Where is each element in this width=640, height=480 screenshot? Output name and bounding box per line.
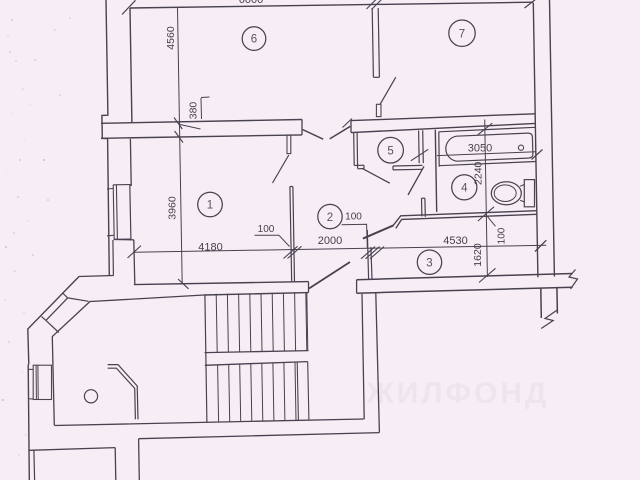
svg-text:7: 7 <box>459 28 465 40</box>
svg-text:100: 100 <box>345 212 362 223</box>
svg-text:380: 380 <box>188 102 200 120</box>
svg-text:2: 2 <box>327 212 333 224</box>
svg-text:3: 3 <box>426 258 432 270</box>
svg-text:4530: 4530 <box>443 235 467 247</box>
svg-text:1: 1 <box>207 200 213 212</box>
svg-text:100: 100 <box>497 227 508 244</box>
svg-text:4180: 4180 <box>198 242 222 254</box>
svg-text:100: 100 <box>258 224 275 235</box>
svg-text:4: 4 <box>461 183 468 195</box>
svg-text:4560: 4560 <box>165 26 177 50</box>
svg-text:6000: 6000 <box>239 0 263 6</box>
svg-text:3960: 3960 <box>167 196 179 220</box>
svg-text:2240: 2240 <box>472 161 484 185</box>
svg-text:2000: 2000 <box>318 235 342 247</box>
svg-text:3050: 3050 <box>468 142 492 154</box>
svg-text:5: 5 <box>387 145 393 157</box>
svg-text:6: 6 <box>251 34 257 46</box>
svg-text:ЖИЛФОНД: ЖИЛФОНД <box>366 377 550 410</box>
